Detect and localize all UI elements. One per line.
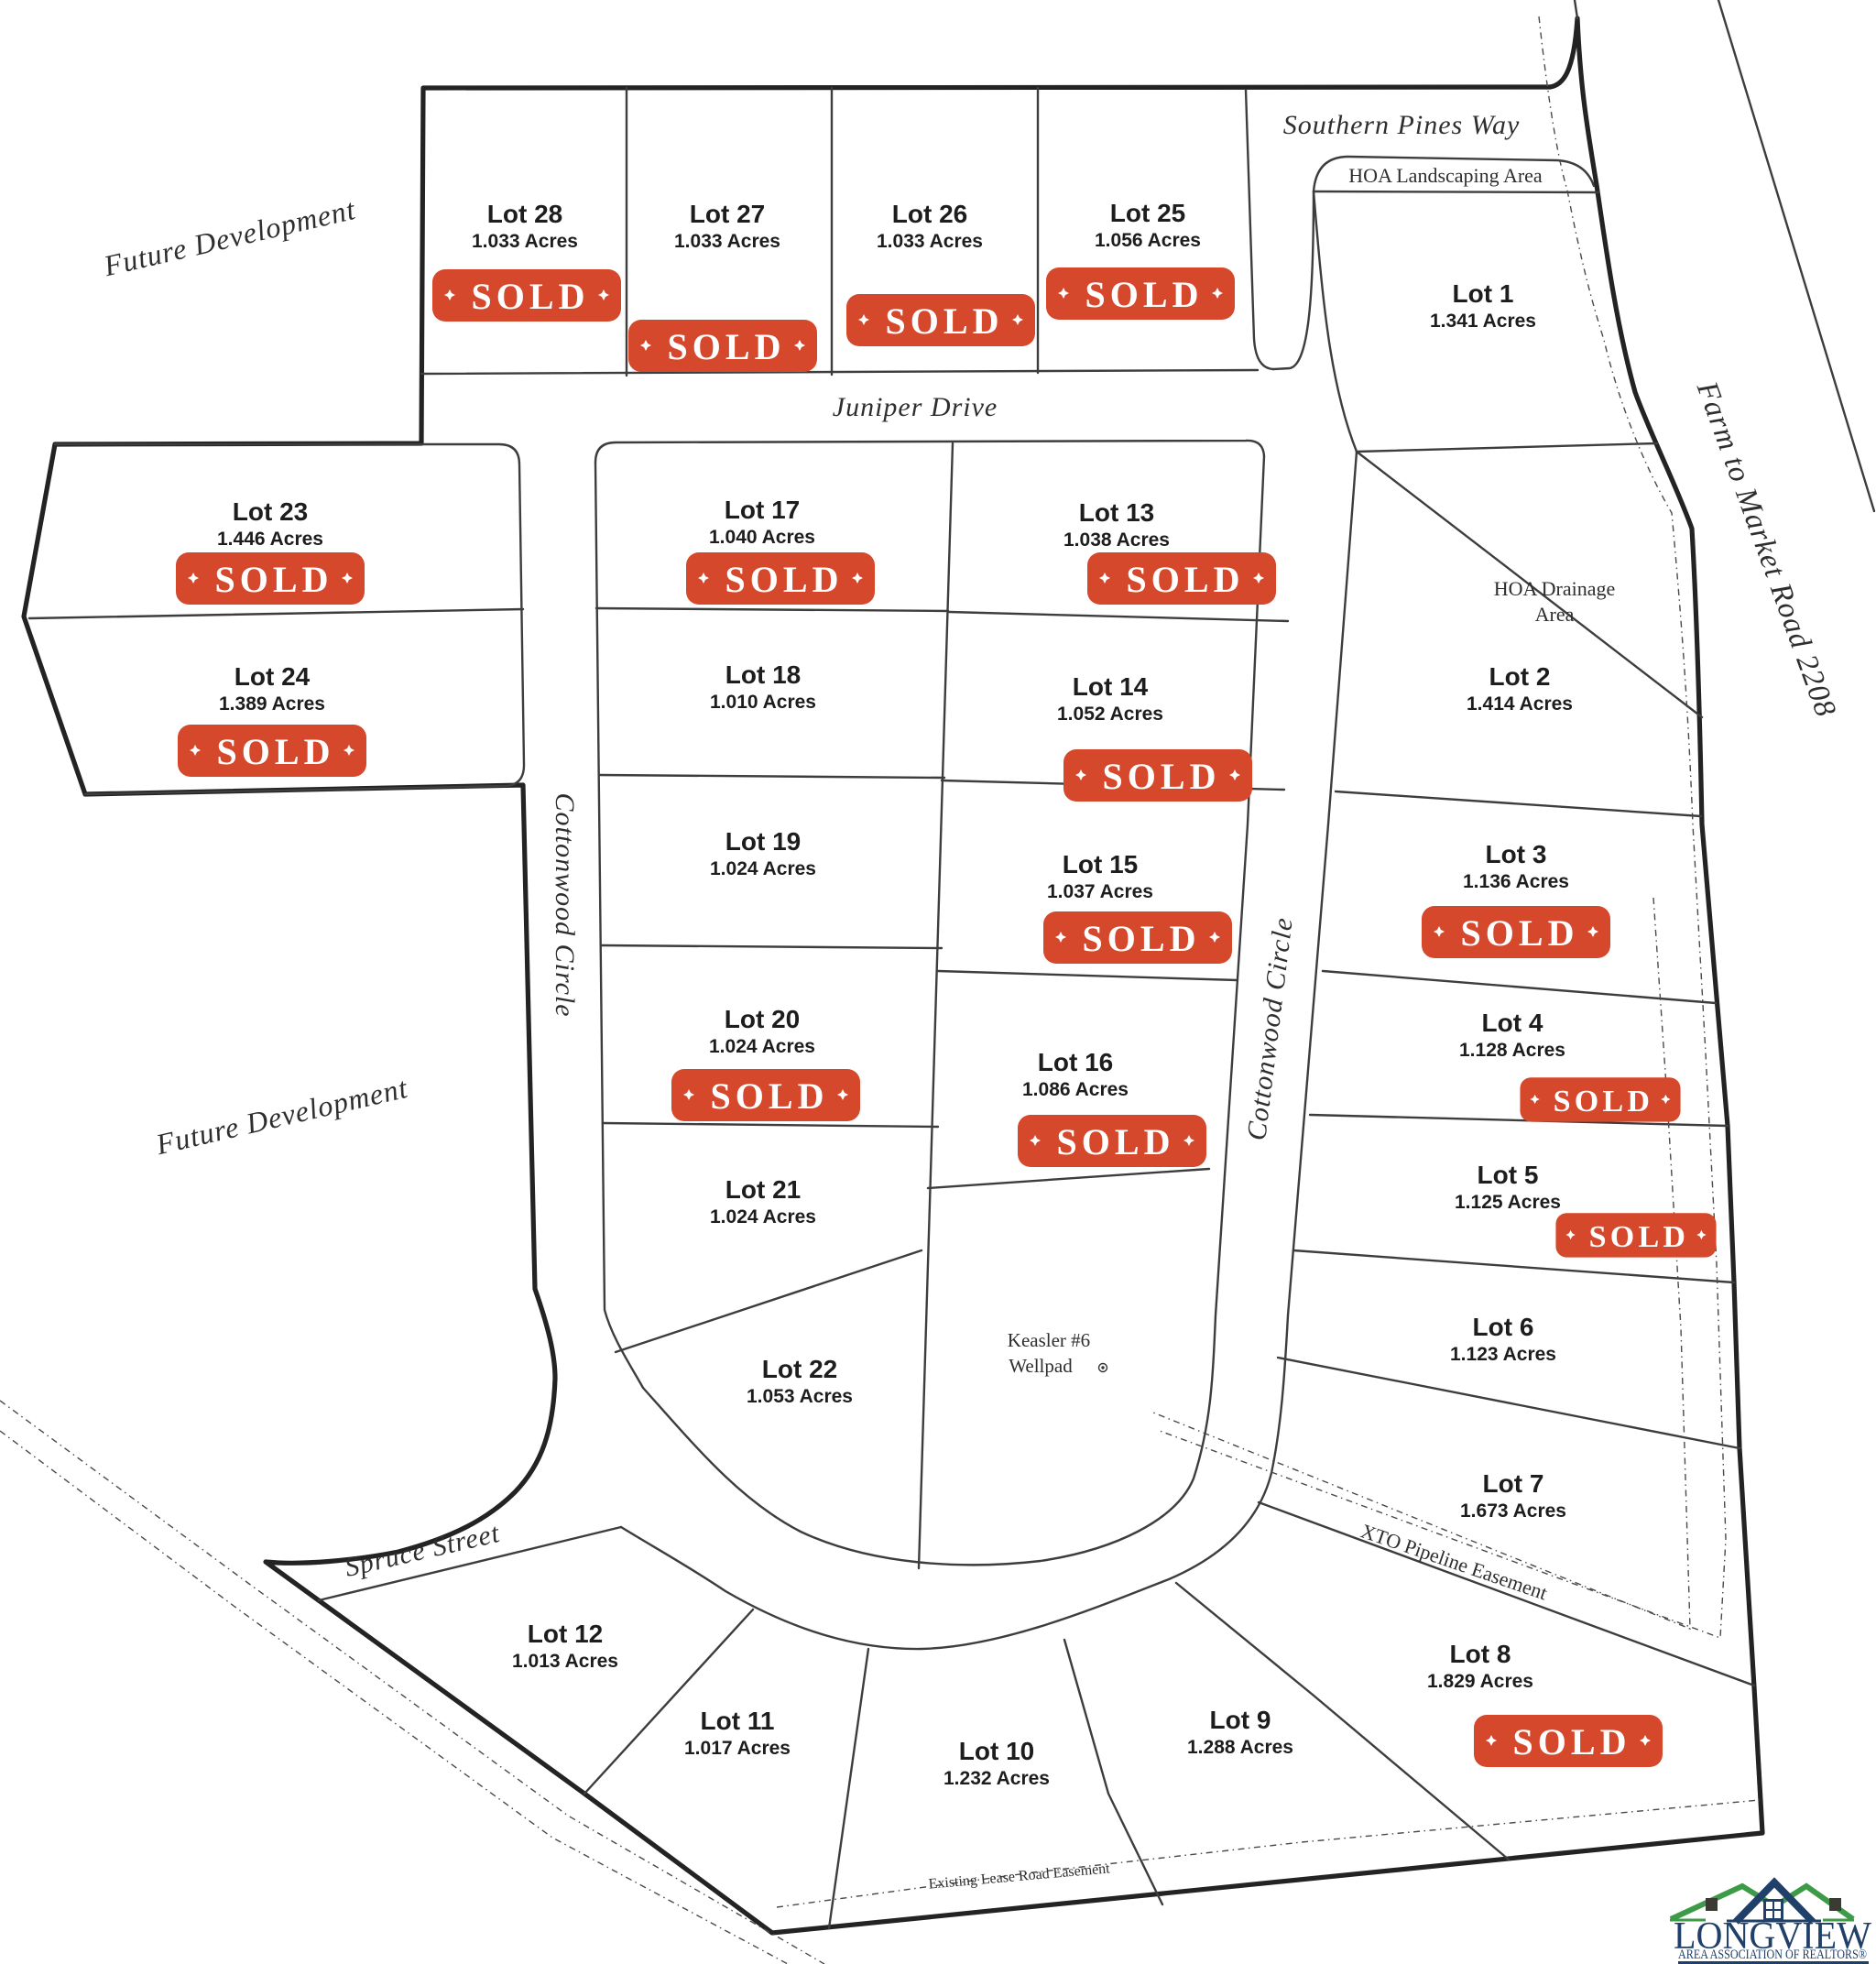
svg-text:1.033 Acres: 1.033 Acres bbox=[674, 231, 780, 252]
svg-text:Southern Pines Way: Southern Pines Way bbox=[1283, 110, 1521, 140]
svg-text:1.288 Acres: 1.288 Acres bbox=[1187, 1737, 1293, 1758]
svg-text:Lot 4: Lot 4 bbox=[1482, 1009, 1543, 1037]
svg-text:1.024 Acres: 1.024 Acres bbox=[710, 1206, 816, 1227]
svg-text:1.673 Acres: 1.673 Acres bbox=[1460, 1500, 1566, 1522]
svg-text:Lot 25: Lot 25 bbox=[1110, 199, 1185, 227]
svg-text:1.341 Acres: 1.341 Acres bbox=[1430, 311, 1536, 332]
svg-text:1.038 Acres: 1.038 Acres bbox=[1063, 529, 1170, 551]
svg-text:1.414 Acres: 1.414 Acres bbox=[1467, 693, 1573, 715]
svg-text:Lot 11: Lot 11 bbox=[701, 1707, 775, 1735]
svg-text:Lot 27: Lot 27 bbox=[690, 200, 765, 228]
svg-text:Lot 8: Lot 8 bbox=[1450, 1640, 1511, 1668]
svg-text:Lot 7: Lot 7 bbox=[1483, 1469, 1544, 1498]
svg-text:1.123 Acres: 1.123 Acres bbox=[1450, 1344, 1556, 1365]
svg-text:1.086 Acres: 1.086 Acres bbox=[1022, 1079, 1129, 1100]
svg-text:Lot 28: Lot 28 bbox=[487, 200, 562, 228]
svg-text:1.010 Acres: 1.010 Acres bbox=[710, 692, 816, 713]
svg-text:1.033 Acres: 1.033 Acres bbox=[877, 231, 983, 252]
svg-text:AREA ASSOCIATION OF REALTORS®: AREA ASSOCIATION OF REALTORS® bbox=[1678, 1948, 1867, 1962]
svg-text:1.389 Acres: 1.389 Acres bbox=[219, 693, 325, 715]
svg-text:Wellpad: Wellpad bbox=[1009, 1355, 1073, 1377]
svg-text:Lot 22: Lot 22 bbox=[762, 1355, 837, 1383]
svg-text:Lot 5: Lot 5 bbox=[1478, 1161, 1539, 1189]
svg-text:Lot 9: Lot 9 bbox=[1210, 1706, 1271, 1734]
svg-text:1.446 Acres: 1.446 Acres bbox=[217, 529, 323, 550]
svg-text:Lot 15: Lot 15 bbox=[1063, 850, 1138, 878]
svg-text:Lot 1: Lot 1 bbox=[1453, 279, 1514, 308]
svg-text:Lot 20: Lot 20 bbox=[725, 1005, 800, 1033]
svg-text:Lot 23: Lot 23 bbox=[233, 497, 308, 526]
svg-text:1.037 Acres: 1.037 Acres bbox=[1047, 881, 1153, 902]
svg-text:1.136 Acres: 1.136 Acres bbox=[1463, 871, 1569, 892]
svg-text:Lot 24: Lot 24 bbox=[234, 662, 311, 691]
svg-text:1.053 Acres: 1.053 Acres bbox=[747, 1386, 853, 1407]
svg-text:Lot 14: Lot 14 bbox=[1073, 672, 1149, 701]
svg-text:1.013 Acres: 1.013 Acres bbox=[512, 1651, 618, 1672]
svg-text:1.125 Acres: 1.125 Acres bbox=[1455, 1192, 1561, 1213]
svg-text:Lot 13: Lot 13 bbox=[1079, 498, 1154, 527]
svg-text:Area: Area bbox=[1535, 603, 1575, 626]
svg-text:Keasler #6: Keasler #6 bbox=[1008, 1329, 1090, 1351]
svg-text:Cottonwood Circle: Cottonwood Circle bbox=[550, 792, 580, 1017]
svg-text:1.017 Acres: 1.017 Acres bbox=[684, 1738, 791, 1759]
svg-text:Lot 6: Lot 6 bbox=[1473, 1313, 1534, 1341]
svg-text:1.232 Acres: 1.232 Acres bbox=[943, 1768, 1050, 1789]
svg-text:Juniper Drive: Juniper Drive bbox=[833, 392, 998, 422]
svg-text:Lot 19: Lot 19 bbox=[725, 827, 801, 856]
svg-text:HOA Drainage: HOA Drainage bbox=[1494, 577, 1616, 600]
svg-text:Lot 10: Lot 10 bbox=[959, 1737, 1034, 1765]
svg-text:HOA Landscaping Area: HOA Landscaping Area bbox=[1348, 164, 1543, 187]
svg-text:Lot 18: Lot 18 bbox=[725, 660, 801, 689]
svg-text:1.829 Acres: 1.829 Acres bbox=[1427, 1671, 1533, 1692]
svg-text:1.040 Acres: 1.040 Acres bbox=[709, 527, 815, 548]
svg-text:1.052 Acres: 1.052 Acres bbox=[1057, 704, 1163, 725]
svg-text:1.024 Acres: 1.024 Acres bbox=[709, 1036, 815, 1057]
svg-text:Lot 16: Lot 16 bbox=[1038, 1048, 1113, 1076]
svg-text:Lot 12: Lot 12 bbox=[528, 1620, 603, 1648]
svg-text:1.024 Acres: 1.024 Acres bbox=[710, 858, 816, 879]
svg-text:Lot 17: Lot 17 bbox=[725, 496, 800, 524]
svg-text:1.056 Acres: 1.056 Acres bbox=[1095, 230, 1201, 251]
svg-text:Lot 26: Lot 26 bbox=[892, 200, 967, 228]
svg-text:1.128 Acres: 1.128 Acres bbox=[1459, 1040, 1565, 1061]
svg-text:Lot 21: Lot 21 bbox=[725, 1175, 801, 1204]
svg-text:1.033 Acres: 1.033 Acres bbox=[472, 231, 578, 252]
svg-text:Lot 2: Lot 2 bbox=[1489, 662, 1551, 691]
svg-text:Lot 3: Lot 3 bbox=[1486, 840, 1547, 868]
